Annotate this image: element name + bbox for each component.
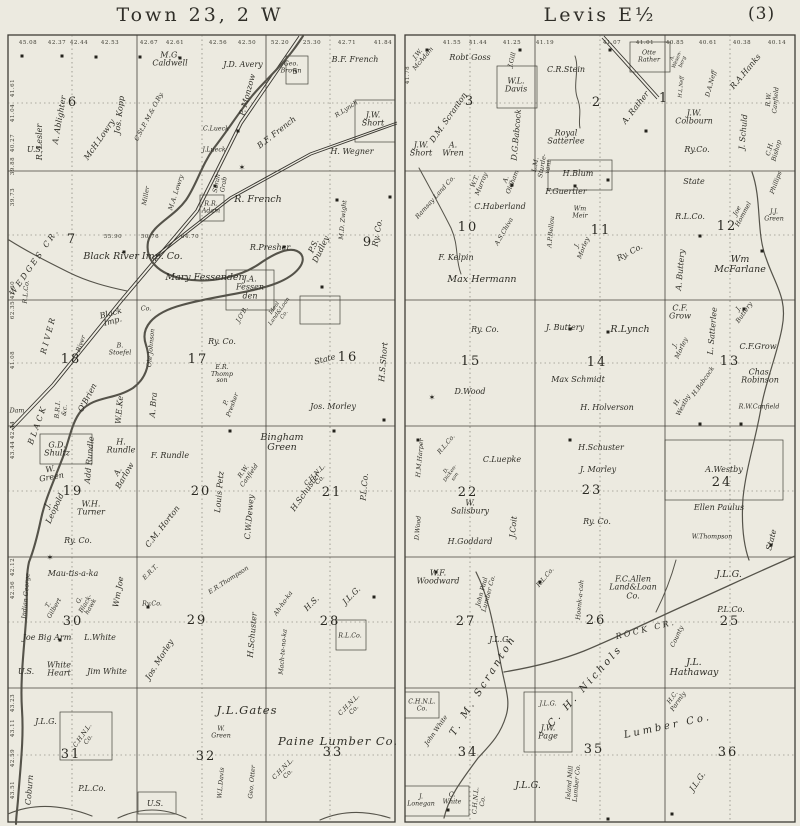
house-marker [21, 55, 24, 58]
house-marker [333, 430, 336, 433]
east-river-path [742, 172, 783, 560]
page-number: (3) [748, 4, 775, 24]
scranton-creek-path [444, 572, 508, 818]
house-marker [519, 49, 522, 52]
township-title-right: Levis E½ [544, 4, 657, 26]
house-marker [770, 544, 773, 547]
waterways [8, 36, 795, 824]
plat-map-page: Town 23, 2 W Levis E½ (3) 45.0842.3742.4… [0, 0, 800, 826]
house-marker [435, 571, 438, 574]
house-marker [511, 184, 514, 187]
allen-branch-path [656, 560, 676, 612]
house-marker [229, 430, 232, 433]
house-marker [417, 439, 420, 442]
map-linework [0, 0, 800, 826]
section-grid [8, 35, 795, 822]
parcel-boxes [40, 42, 783, 816]
ramsay-creek-path [419, 168, 461, 274]
house-marker [321, 286, 324, 289]
house-marker [147, 606, 150, 609]
school-marker: ✶ [47, 554, 54, 562]
house-marker [699, 235, 702, 238]
house-marker [426, 49, 429, 52]
school-marker: ✶ [239, 164, 246, 172]
railroad-branch [152, 122, 397, 258]
house-marker [373, 596, 376, 599]
house-marker [237, 130, 240, 133]
bottom-slough-path [8, 806, 390, 820]
house-marker [569, 328, 572, 331]
black-river-path [16, 36, 303, 824]
left-panel-border [8, 35, 395, 822]
railroad-main [10, 36, 299, 428]
house-marker [214, 185, 217, 188]
house-marker [95, 56, 98, 59]
house-marker [609, 49, 612, 52]
railroad-stub [604, 36, 659, 97]
township-title-left: Town 23, 2 W [116, 4, 283, 26]
house-marker [59, 639, 62, 642]
house-marker [123, 251, 126, 254]
house-marker [283, 246, 286, 249]
wedges-creek-path [9, 240, 127, 291]
house-marker [139, 56, 142, 59]
house-marker [574, 185, 577, 188]
house-marker [761, 250, 764, 253]
house-marker [671, 813, 674, 816]
house-marker [389, 196, 392, 199]
house-marker [569, 439, 572, 442]
house-marker [607, 179, 610, 182]
house-marker [179, 57, 182, 60]
house-marker [743, 308, 746, 311]
house-marker [645, 130, 648, 133]
house-marker [61, 55, 64, 58]
house-marker [336, 199, 339, 202]
rock-creek-path [504, 556, 795, 672]
stein-creek-path [575, 56, 580, 128]
school-marker: ✶ [429, 394, 436, 402]
house-marker [607, 331, 610, 334]
house-marker [699, 423, 702, 426]
house-marker [607, 818, 610, 821]
house-marker [447, 809, 450, 812]
house-marker [539, 581, 542, 584]
house-marker [383, 419, 386, 422]
quarter-section-grid [8, 35, 795, 822]
house-marker [740, 423, 743, 426]
railroad-lines [10, 36, 659, 430]
